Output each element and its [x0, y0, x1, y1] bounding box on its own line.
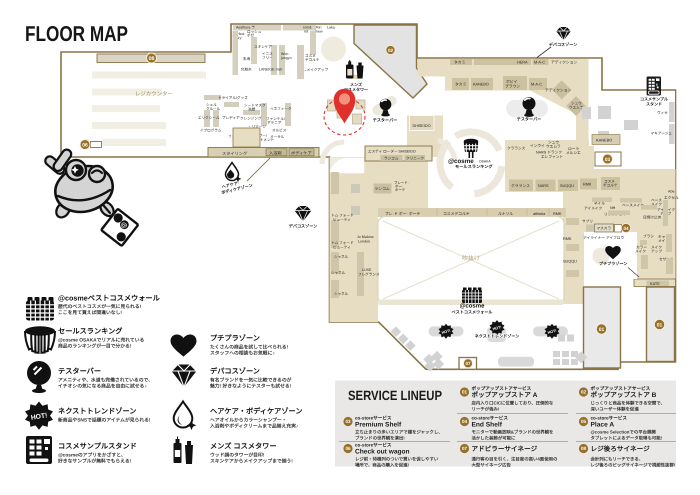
svg-text:レジ前・待機列のついで買いを促しやすい: レジ前・待機列のついで買いを促しやすい	[355, 457, 439, 462]
svg-text:ポップアップストアサービス: ポップアップストアサービス	[591, 385, 651, 391]
svg-text:じっくりと商品を体験できる空間で、: じっくりと商品を体験できる空間で、	[591, 401, 665, 406]
svg-text:場所で、商品の購入を促進!: 場所で、商品の購入を促進!	[355, 463, 410, 468]
svg-text:Place A: Place A	[591, 422, 615, 429]
svg-text:co-storeサービス: co-storeサービス	[355, 443, 392, 448]
svg-text:レジ後ろのビッグサイネージで視認性抜群!: レジ後ろのビッグサイネージで視認性抜群!	[591, 463, 676, 468]
svg-text:アドピラーサイネージ: アドピラーサイネージ	[472, 445, 538, 453]
svg-text:活かした装飾が可能に: 活かした装飾が可能に	[472, 436, 517, 441]
svg-text:07: 07	[462, 446, 468, 451]
svg-text:タブレットによるデータ取得も可能!: タブレットによるデータ取得も可能!	[591, 436, 663, 441]
svg-text:SERVICE LINEUP: SERVICE LINEUP	[348, 388, 442, 403]
svg-text:co-storeサービス: co-storeサービス	[472, 416, 509, 421]
svg-text:立ち止まりの多いエリアで棚をジャックし、: 立ち止まりの多いエリアで棚をジャックし、	[355, 430, 443, 435]
svg-text:co-storeサービス: co-storeサービス	[355, 416, 392, 421]
svg-text:@cosme Selectionでの平台展開: @cosme Selectionでの平台展開	[591, 430, 657, 435]
svg-text:店内入り口CICに位置しており、圧倒的な: 店内入り口CICに位置しており、圧倒的な	[471, 401, 554, 406]
svg-text:リーチが強み!: リーチが強み!	[472, 407, 500, 412]
svg-text:会計列にもリーチできる、: 会計列にもリーチできる、	[591, 457, 644, 462]
svg-text:co-storeサービス: co-storeサービス	[591, 416, 628, 421]
svg-text:深いユーザー体験を促進: 深いユーザー体験を促進	[591, 407, 640, 412]
svg-text:レジ後ろサイネージ: レジ後ろサイネージ	[591, 445, 651, 453]
svg-text:End Shelf: End Shelf	[472, 422, 503, 429]
svg-text:通行客の目を引く、注目度の高い4面使用の: 通行客の目を引く、注目度の高い4面使用の	[472, 457, 558, 462]
svg-text:03: 03	[345, 419, 351, 424]
svg-text:05: 05	[581, 419, 587, 424]
svg-text:ポップアップストア B: ポップアップストア B	[591, 391, 657, 399]
svg-text:04: 04	[462, 419, 468, 424]
svg-text:モニターで動画放映&ブランドの世界観を: モニターで動画放映&ブランドの世界観を	[472, 430, 555, 435]
svg-text:Premium Shelf: Premium Shelf	[355, 422, 402, 429]
svg-text:ポップアップストアサービス: ポップアップストアサービス	[472, 385, 532, 391]
svg-text:06: 06	[345, 446, 351, 451]
svg-text:ブランドの世界観を演出!: ブランドの世界観を演出!	[355, 436, 405, 441]
svg-text:大型サイネージ広告: 大型サイネージ広告	[472, 463, 512, 468]
svg-text:01: 01	[462, 390, 468, 395]
svg-text:08: 08	[581, 446, 587, 451]
svg-text:Check out wagon: Check out wagon	[355, 449, 410, 456]
svg-text:02: 02	[581, 390, 587, 395]
svg-text:ポップアップストア A: ポップアップストア A	[472, 391, 538, 399]
